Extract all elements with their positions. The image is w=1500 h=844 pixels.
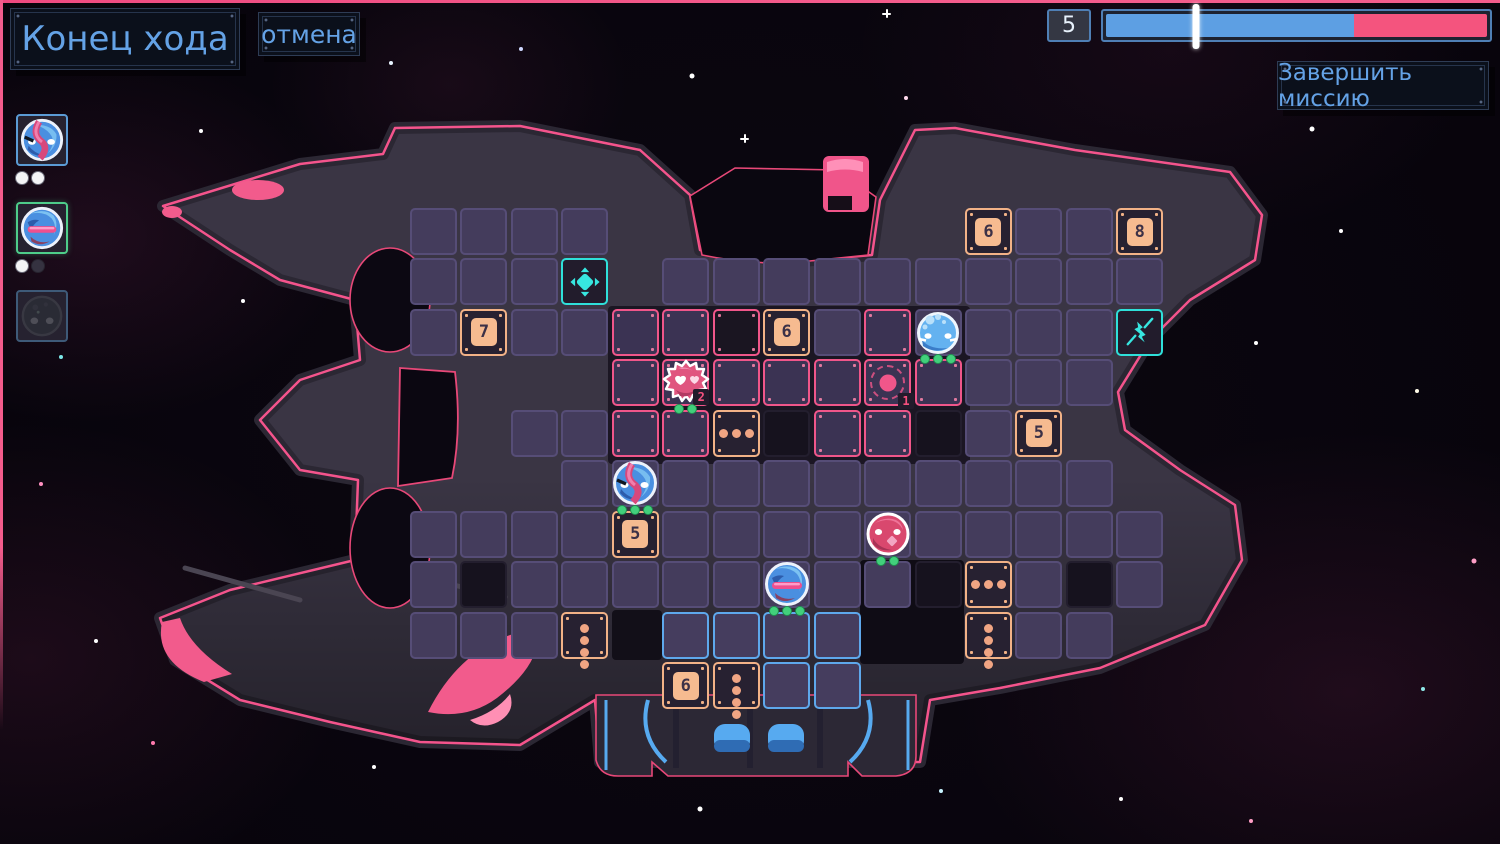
roster-portrait-ghost[interactable] — [16, 290, 68, 342]
board-tile-n[interactable] — [713, 258, 760, 305]
board-tile-n[interactable] — [1066, 309, 1113, 356]
board-tile-n[interactable] — [511, 410, 558, 457]
board-tile-n[interactable] — [561, 309, 608, 356]
board-tile-n[interactable] — [662, 258, 709, 305]
board-tile-n[interactable] — [864, 258, 911, 305]
board-tile-n[interactable] — [763, 511, 810, 558]
board-tile-num[interactable]: 7 — [460, 309, 507, 356]
board-tile-n[interactable] — [965, 511, 1012, 558]
board-tile-pink[interactable] — [915, 359, 962, 406]
board-tile-n[interactable] — [460, 258, 507, 305]
unit-action-pips — [920, 354, 956, 364]
board-tile-n[interactable] — [1116, 561, 1163, 608]
board-tile-dots3[interactable] — [713, 410, 760, 457]
board-tile-blue[interactable] — [763, 612, 810, 659]
unit-action-pips — [674, 404, 697, 414]
board-tile-pink[interactable] — [612, 410, 659, 457]
game-screen: 687615562 Конец хода отмена Завершить ми… — [0, 0, 1500, 844]
roster-portrait-planet_band-selected[interactable] — [16, 202, 68, 254]
board-tile-pinkdark[interactable] — [713, 309, 760, 356]
board-tile-n[interactable] — [763, 460, 810, 507]
tile-number: 5 — [622, 520, 648, 548]
board-tile-n[interactable] — [662, 511, 709, 558]
board-tile-blue[interactable] — [662, 612, 709, 659]
board-tile-n[interactable] — [965, 410, 1012, 457]
board-tile-n[interactable] — [814, 561, 861, 608]
board-tile-num[interactable]: 5 — [612, 511, 659, 558]
tile-pips-icon — [563, 614, 606, 657]
board-tile-dark[interactable] — [915, 410, 962, 457]
move-gizmo-icon — [569, 266, 601, 298]
board-tile-n[interactable] — [965, 460, 1012, 507]
board-tile-n[interactable] — [511, 309, 558, 356]
board-tile-blue[interactable] — [814, 662, 861, 709]
board-unit-planet_band[interactable] — [763, 560, 811, 608]
board-tile-n[interactable] — [1066, 258, 1113, 305]
board-tile-num[interactable]: 5 — [1015, 410, 1062, 457]
unit-action-pips — [617, 505, 653, 515]
board-unit-blob[interactable] — [864, 510, 912, 558]
board-tile-pink[interactable] — [662, 309, 709, 356]
board-tile-n[interactable] — [410, 561, 457, 608]
board-tile-n[interactable] — [410, 208, 457, 255]
board-tile-pink[interactable] — [864, 309, 911, 356]
board-tile-dots4[interactable] — [561, 612, 608, 659]
board-tile-pink[interactable] — [864, 410, 911, 457]
board-tile-n[interactable] — [1015, 561, 1062, 608]
tile-number: 7 — [471, 318, 497, 346]
board-tile-n[interactable] — [1066, 612, 1113, 659]
board-tile-n[interactable] — [814, 511, 861, 558]
board-tile-n[interactable] — [662, 460, 709, 507]
board-tile-target[interactable]: 1 — [864, 359, 911, 406]
board-tile-n[interactable] — [1066, 511, 1113, 558]
board-tile-n[interactable] — [1015, 309, 1062, 356]
board-tile-n[interactable] — [460, 208, 507, 255]
board-tile-n[interactable] — [662, 561, 709, 608]
screen-frame-top — [0, 0, 1500, 3]
board-tile-move[interactable] — [561, 258, 608, 305]
board-tile-blue[interactable] — [814, 612, 861, 659]
board-tile-n[interactable] — [814, 258, 861, 305]
board-tile-n[interactable] — [511, 258, 558, 305]
board-tile-n[interactable] — [1066, 460, 1113, 507]
board-tile-n[interactable] — [511, 208, 558, 255]
board-tile-n[interactable] — [561, 511, 608, 558]
board-tile-n[interactable] — [410, 612, 457, 659]
board-tile-num[interactable]: 6 — [763, 309, 810, 356]
board-tile-dark[interactable] — [460, 561, 507, 608]
board-tile-dots4[interactable] — [965, 612, 1012, 659]
board-tile-pink[interactable] — [814, 410, 861, 457]
board-tile-n[interactable] — [965, 359, 1012, 406]
board-unit-planet_angry[interactable] — [611, 459, 659, 507]
board-tile-n[interactable] — [713, 561, 760, 608]
board-tile-n[interactable] — [1066, 208, 1113, 255]
board-tile-n[interactable] — [410, 258, 457, 305]
board-tile-blue[interactable] — [713, 612, 760, 659]
board-tile-n[interactable] — [1116, 511, 1163, 558]
mission-bar-blue-fill — [1106, 14, 1354, 37]
board-tile-pink[interactable] — [662, 410, 709, 457]
tile-pips-icon — [715, 664, 758, 707]
tile-number: 6 — [673, 672, 699, 700]
board-tile-n[interactable] — [410, 309, 457, 356]
tile-pips-icon — [967, 563, 1010, 606]
tile-number: 6 — [975, 218, 1001, 246]
board-tile-n[interactable] — [1066, 359, 1113, 406]
board-tile-n[interactable] — [410, 511, 457, 558]
board-tile-n[interactable] — [915, 460, 962, 507]
board-tile-n[interactable] — [561, 208, 608, 255]
board-tile-n[interactable] — [511, 511, 558, 558]
board-tile-n[interactable] — [511, 561, 558, 608]
board-tile-n[interactable] — [965, 309, 1012, 356]
board-tile-pink[interactable] — [612, 359, 659, 406]
tile-number: 6 — [774, 318, 800, 346]
board-tile-num[interactable]: 6 — [662, 662, 709, 709]
board-tile-n[interactable] — [915, 258, 962, 305]
end-turn-button[interactable]: Конец хода — [10, 8, 240, 70]
board: 687615562 — [410, 208, 1170, 844]
cancel-button[interactable]: отмена — [258, 12, 360, 56]
crack-icon — [1124, 316, 1156, 348]
board-tile-pink[interactable] — [713, 359, 760, 406]
board-tile-dots4[interactable] — [713, 662, 760, 709]
board-tile-blue[interactable] — [763, 662, 810, 709]
roster-portrait-planet_angry[interactable] — [16, 114, 68, 166]
board-tile-pink[interactable] — [763, 359, 810, 406]
board-tile-n[interactable] — [814, 309, 861, 356]
mission-progress-bar — [1101, 9, 1492, 42]
board-tile-dots3[interactable] — [965, 561, 1012, 608]
target-dot-icon — [879, 374, 896, 391]
roster-action-pips — [16, 172, 44, 184]
board-tile-dark[interactable] — [915, 561, 962, 608]
board-tile-n[interactable] — [713, 460, 760, 507]
tile-pips-icon — [967, 614, 1010, 657]
board-tile-n[interactable] — [1015, 511, 1062, 558]
unit-action-pips — [876, 556, 899, 566]
board-tile-n[interactable] — [460, 612, 507, 659]
mission-bar-pink-fill — [1354, 14, 1487, 37]
board-tile-n[interactable] — [864, 561, 911, 608]
tile-pips-icon — [715, 412, 758, 455]
mission-bar-marker — [1192, 4, 1199, 49]
enemy-order-label: 2 — [693, 389, 709, 405]
target-order-label: 1 — [898, 393, 914, 409]
board-unit-bubble[interactable] — [914, 308, 962, 356]
board-tile-num[interactable]: 8 — [1116, 208, 1163, 255]
screen-frame-left — [0, 0, 3, 730]
board-tile-n[interactable] — [1015, 258, 1062, 305]
board-tile-n[interactable] — [915, 511, 962, 558]
board-tile-pink[interactable] — [814, 359, 861, 406]
board-tile-n[interactable] — [460, 511, 507, 558]
board-tile-n[interactable] — [561, 410, 608, 457]
roster-action-pips — [16, 260, 44, 272]
finish-mission-button[interactable]: Завершить миссию — [1277, 61, 1489, 110]
board-tile-n[interactable] — [1015, 612, 1062, 659]
board-tile-pink[interactable] — [612, 309, 659, 356]
board-tile-n[interactable] — [814, 460, 861, 507]
tile-number: 8 — [1127, 218, 1153, 246]
turn-counter: 5 — [1047, 9, 1091, 42]
board-tile-n[interactable] — [1116, 258, 1163, 305]
board-tile-dark[interactable] — [1066, 561, 1113, 608]
board-tile-n[interactable] — [561, 561, 608, 608]
tile-number: 5 — [1026, 419, 1052, 447]
board-tile-n[interactable] — [561, 460, 608, 507]
board-tile-n[interactable] — [612, 561, 659, 608]
board-tile-n[interactable] — [1015, 460, 1062, 507]
unit-action-pips — [769, 606, 805, 616]
board-tile-num[interactable]: 6 — [965, 208, 1012, 255]
board-tile-n[interactable] — [1015, 208, 1062, 255]
board-tile-n[interactable] — [763, 258, 810, 305]
board-tile-n[interactable] — [1015, 359, 1062, 406]
board-tile-n[interactable] — [713, 511, 760, 558]
board-tile-dark[interactable] — [763, 410, 810, 457]
board-tile-crack[interactable] — [1116, 309, 1163, 356]
board-tile-n[interactable] — [511, 612, 558, 659]
board-tile-n[interactable] — [965, 258, 1012, 305]
board-tile-n[interactable] — [864, 460, 911, 507]
